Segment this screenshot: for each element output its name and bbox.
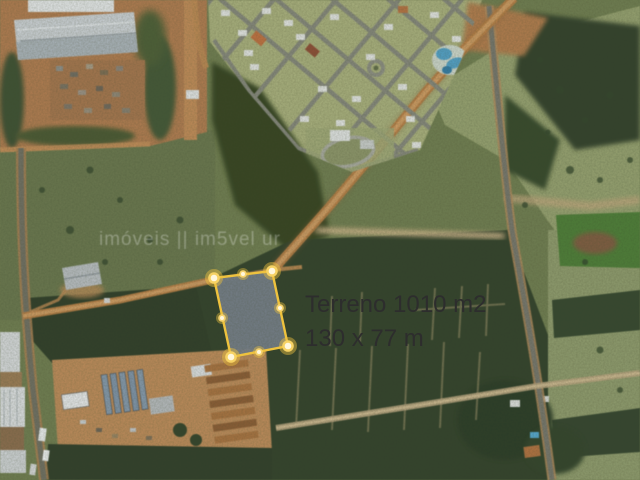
parcel-handle-w[interactable]	[216, 312, 228, 324]
parcel-handle-se[interactable]	[279, 337, 297, 355]
photo-haze	[0, 0, 640, 480]
parcel-handle-sw[interactable]	[222, 348, 240, 366]
parcel-area-label: Terreno 1010 m2	[305, 293, 486, 317]
satellite-listing-photo: imóveis || im5vel ur Terreno 1010 m2 130…	[0, 0, 640, 480]
parcel-handle-nw[interactable]	[205, 269, 223, 287]
parcel-handle-e[interactable]	[274, 302, 286, 314]
parcel-handle-s[interactable]	[253, 346, 265, 358]
parcel-dimensions-label: 130 x 77 m	[305, 327, 424, 351]
satellite-imagery	[0, 0, 640, 480]
parcel-handle-ne[interactable]	[263, 262, 281, 280]
parcel-handle-n[interactable]	[237, 268, 249, 280]
watermark-text: imóveis || im5vel ur	[99, 229, 281, 251]
